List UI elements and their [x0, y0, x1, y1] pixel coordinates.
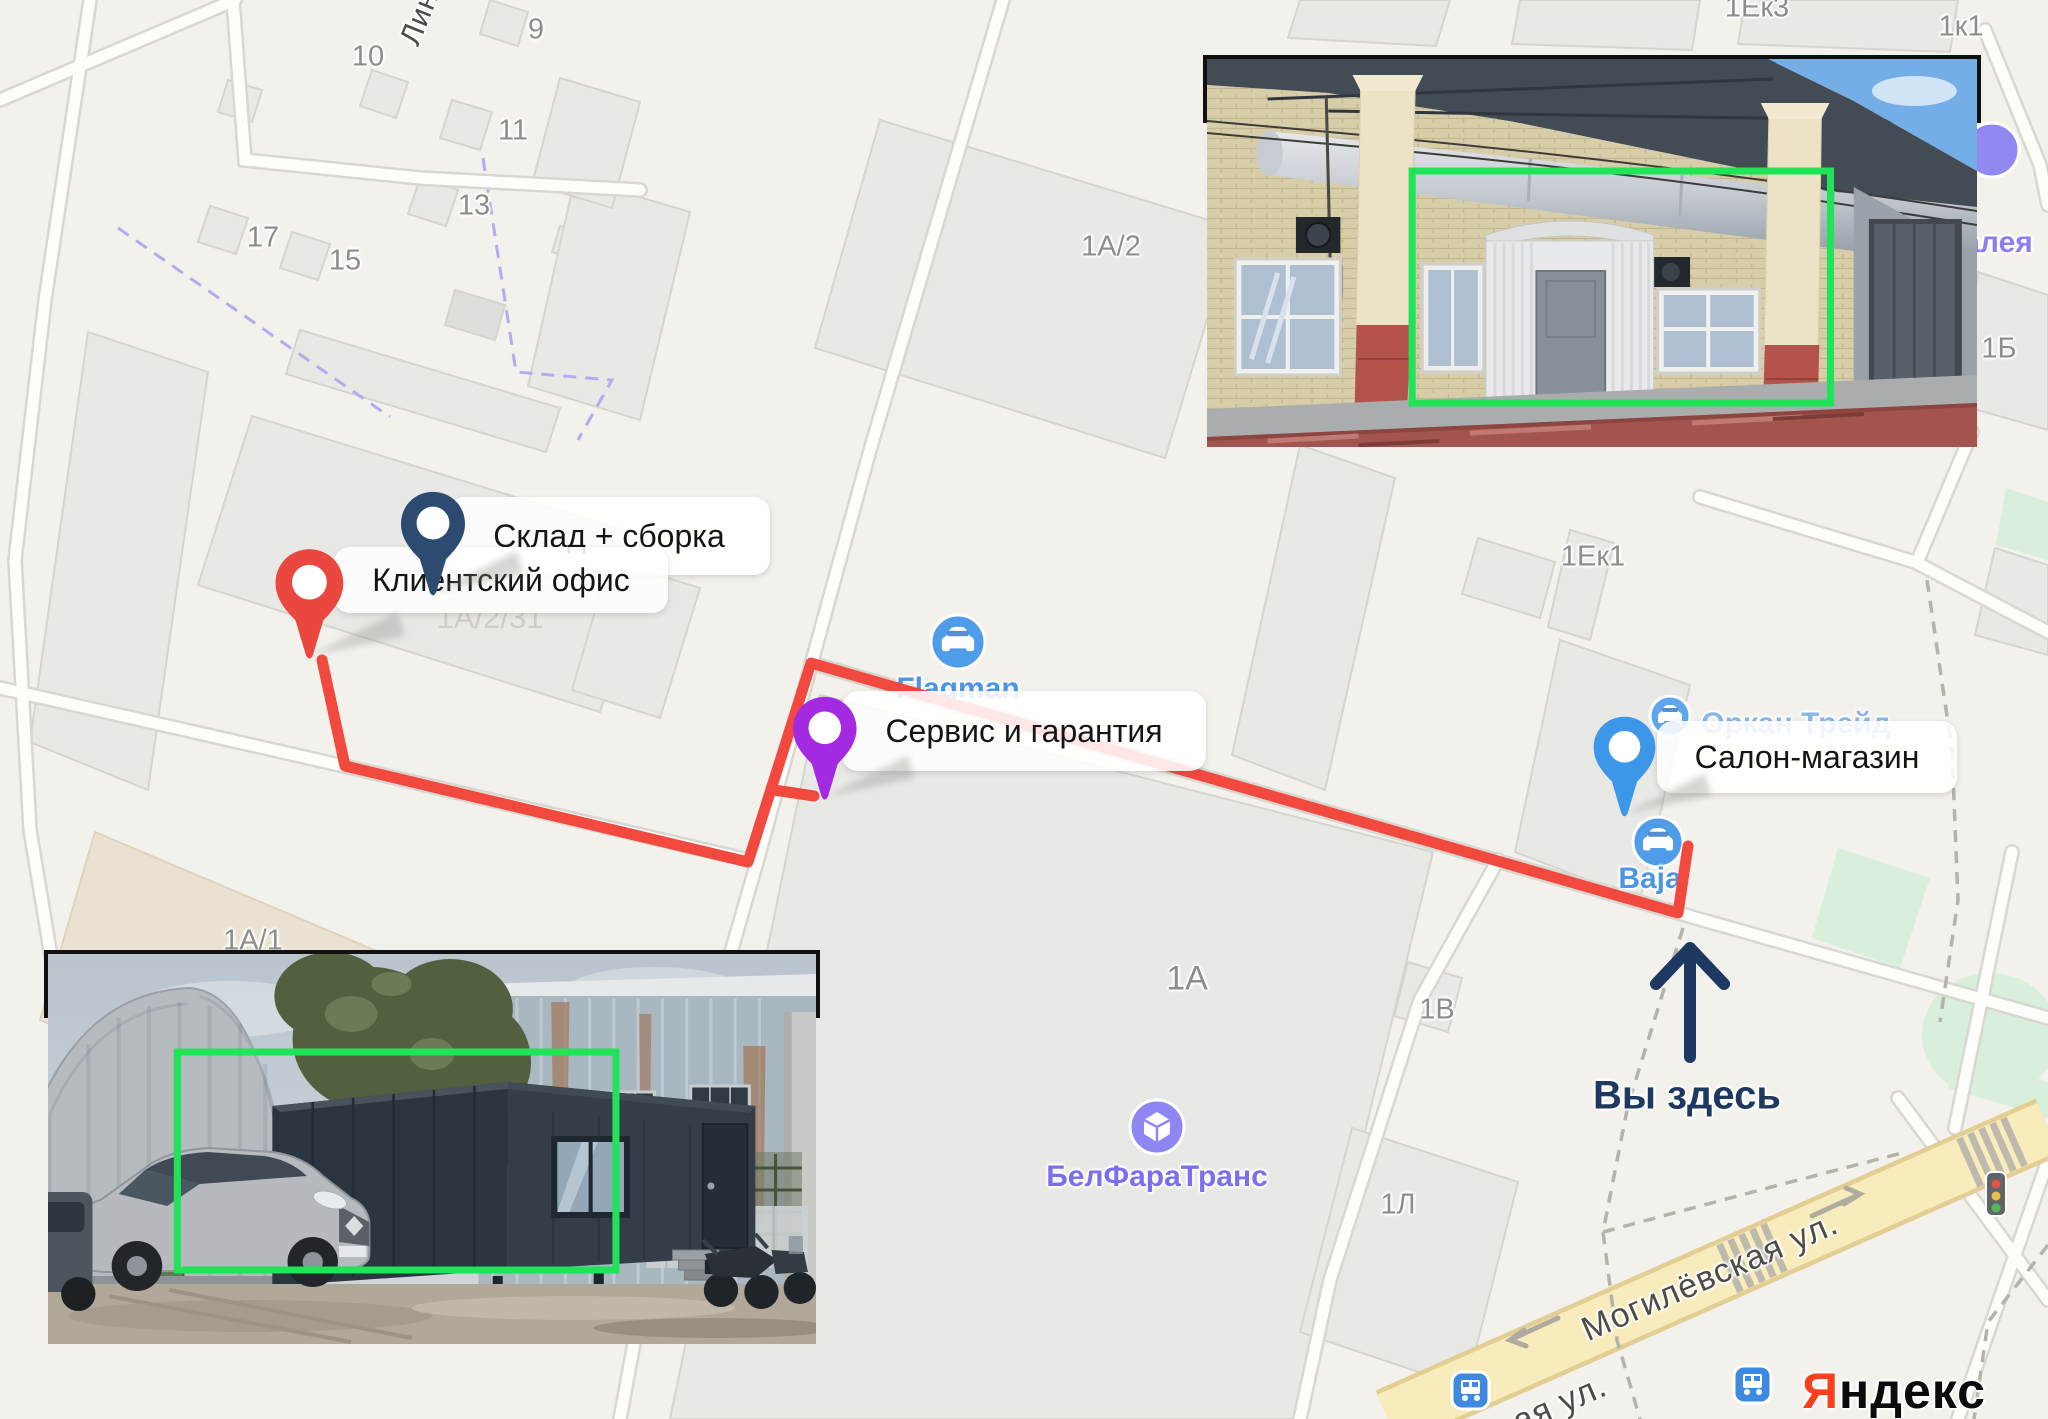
- building-label: 1Л: [1380, 1189, 1415, 1222]
- building-label: 1А/2: [1081, 231, 1141, 264]
- photo-inset-client-office: Клиентский офис: [44, 950, 820, 1018]
- yandex-logo-ya: Я: [1802, 1363, 1839, 1419]
- client-office-photo: [48, 954, 816, 1344]
- photo-inset-service: Сервис и гарантия: [1203, 55, 1981, 123]
- crosswalk: [1720, 1118, 2025, 1292]
- you-are-here-arrow: [1656, 948, 1724, 1057]
- bus-stop-icon[interactable]: [1734, 1366, 1771, 1403]
- building-label: 9: [528, 14, 544, 47]
- green-area: [1948, 1052, 2048, 1118]
- building-label: 17: [247, 222, 279, 255]
- map-viewport[interactable]: 10 9 11 13 17 15 1А/2 1Ек3 1к1 1Б 1Ек1 1…: [0, 0, 2048, 1419]
- building-label: 1к1: [1939, 11, 1984, 44]
- marker-label-text: Салон-магазин: [1695, 739, 1920, 776]
- poi-flagman-icon[interactable]: [931, 615, 985, 669]
- poi-baja-icon[interactable]: [1633, 817, 1683, 867]
- marker-label-text: Клиентский офис: [372, 562, 630, 599]
- building-label: 13: [458, 190, 490, 223]
- building-label: 15: [329, 245, 361, 278]
- building-label: 1Ек3: [1725, 0, 1789, 25]
- path-dashed: [1603, 580, 2048, 1419]
- green-area: [1996, 488, 2048, 560]
- building-label: 10: [352, 41, 384, 74]
- building-label: 11: [498, 115, 528, 148]
- poi-belfaratrans-label[interactable]: БелФараТранс: [1046, 1160, 1268, 1194]
- green-area: [1922, 973, 2048, 1097]
- poi-baja-label[interactable]: Baja: [1618, 862, 1681, 896]
- bus-stop-icon[interactable]: [1452, 1372, 1489, 1409]
- building-label: 1А: [1166, 960, 1208, 999]
- service-photo: [1207, 59, 1977, 447]
- marker-label-service[interactable]: Сервис и гарантия: [842, 691, 1206, 771]
- green-area: [1812, 848, 1930, 968]
- yandex-logo[interactable]: Яндекс: [1802, 1362, 1986, 1419]
- marker-label-salon[interactable]: Салон-магазин: [1657, 721, 1957, 793]
- building-label: 1Б: [1981, 333, 2016, 366]
- you-are-here-label: Вы здесь: [1593, 1074, 1781, 1119]
- traffic-light-icon: [1986, 1172, 2006, 1216]
- boundary-line: [118, 158, 612, 440]
- building-label: 1В: [1419, 994, 1454, 1027]
- street-label-mogilevskaya: Могилёвская ул.: [1576, 1204, 1844, 1350]
- poi-belfaratrans-icon[interactable]: [1130, 1100, 1184, 1154]
- marker-label-text: Сервис и гарантия: [885, 713, 1162, 750]
- road-arrow: [1510, 1188, 1860, 1346]
- street-label-linear: Лин: [394, 0, 447, 50]
- building-label: 1Ек1: [1561, 541, 1625, 574]
- marker-label-client-office[interactable]: Клиентский офис: [334, 547, 668, 613]
- street-label-fragment: ая ул.: [1507, 1367, 1613, 1419]
- yandex-logo-rest: ндекс: [1839, 1363, 1986, 1419]
